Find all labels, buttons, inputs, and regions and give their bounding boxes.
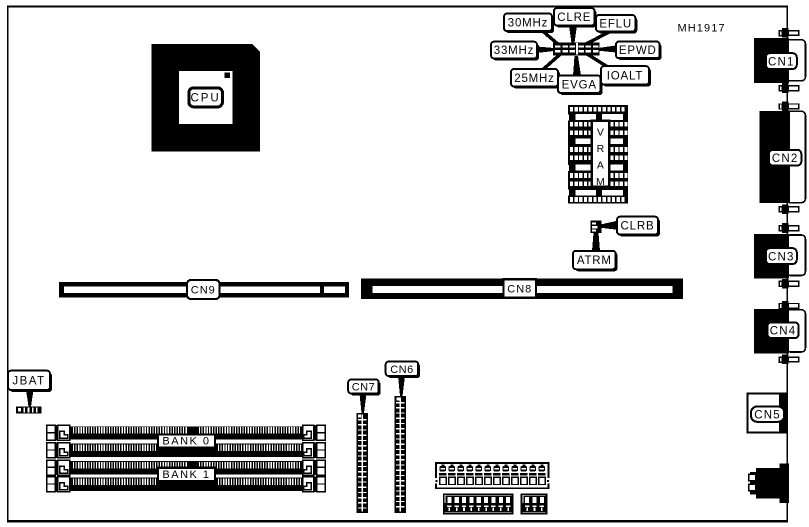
svg-text:CN9: CN9 xyxy=(191,285,216,297)
svg-text:IOALT: IOALT xyxy=(607,70,643,82)
svg-text:CLRE: CLRE xyxy=(557,12,591,24)
svg-text:CN7: CN7 xyxy=(352,382,376,394)
svg-text:BANK 0: BANK 0 xyxy=(162,436,210,448)
svg-text:A: A xyxy=(597,160,604,172)
svg-text:EFLU: EFLU xyxy=(599,18,632,30)
svg-text:CN4: CN4 xyxy=(770,325,797,337)
svg-text:CN2: CN2 xyxy=(772,153,799,165)
svg-text:30MHz: 30MHz xyxy=(508,17,548,29)
svg-text:MH1917: MH1917 xyxy=(678,22,726,34)
svg-text:ATRM: ATRM xyxy=(577,255,612,267)
svg-text:CLRB: CLRB xyxy=(621,221,655,233)
svg-text:CN8: CN8 xyxy=(507,284,532,296)
svg-text:V: V xyxy=(597,127,604,139)
svg-text:EVGA: EVGA xyxy=(562,79,597,91)
svg-text:CN1: CN1 xyxy=(768,56,795,68)
svg-text:33MHz: 33MHz xyxy=(494,45,534,57)
svg-text:CPU: CPU xyxy=(190,92,220,104)
svg-text:M: M xyxy=(596,176,605,188)
svg-text:R: R xyxy=(597,143,605,155)
svg-text:CN6: CN6 xyxy=(390,364,414,376)
svg-text:25MHz: 25MHz xyxy=(514,73,554,85)
svg-text:CN5: CN5 xyxy=(754,409,781,421)
svg-text:JBAT: JBAT xyxy=(12,375,45,387)
svg-text:BANK 1: BANK 1 xyxy=(162,469,210,481)
svg-text:CN3: CN3 xyxy=(768,251,795,263)
svg-text:EPWD: EPWD xyxy=(619,45,657,57)
